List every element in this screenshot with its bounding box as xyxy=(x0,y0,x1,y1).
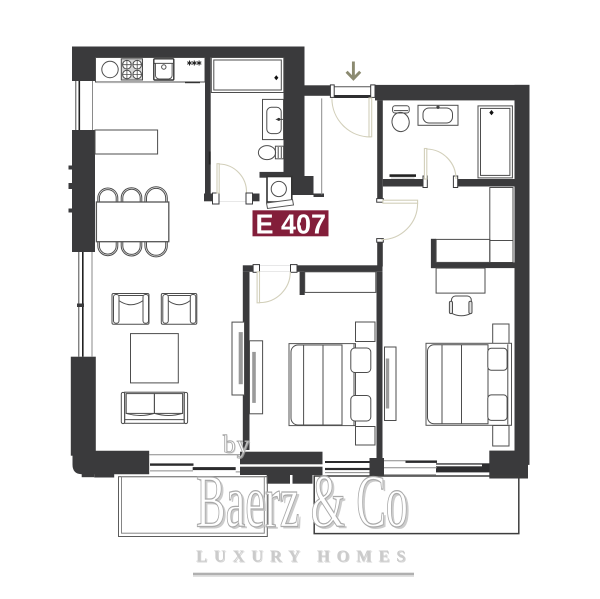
svg-text:by: by xyxy=(223,430,251,459)
svg-text:Baerz & Co: Baerz & Co xyxy=(196,461,408,544)
svg-text:LUXURY HOMES: LUXURY HOMES xyxy=(196,547,412,566)
svg-text:E 407: E 407 xyxy=(256,209,327,240)
